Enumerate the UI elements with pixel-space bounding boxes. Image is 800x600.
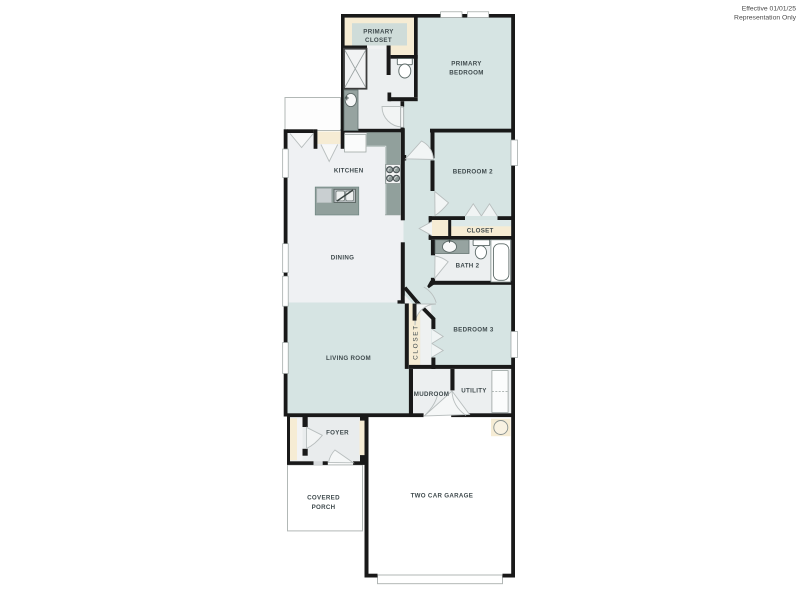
svg-text:Effective 01/01/25: Effective 01/01/25 <box>742 6 797 13</box>
svg-text:DINING: DINING <box>331 255 354 262</box>
svg-text:PORCH: PORCH <box>312 504 336 511</box>
svg-text:MUDROOM: MUDROOM <box>414 391 449 398</box>
svg-text:TWO CAR GARAGE: TWO CAR GARAGE <box>411 493 474 500</box>
svg-text:CLOSET: CLOSET <box>413 324 420 360</box>
svg-text:LIVING ROOM: LIVING ROOM <box>326 355 371 362</box>
svg-text:BEDROOM 2: BEDROOM 2 <box>453 169 493 176</box>
svg-text:BEDROOM: BEDROOM <box>449 70 483 77</box>
svg-text:BEDROOM 3: BEDROOM 3 <box>453 326 493 333</box>
svg-text:UTILITY: UTILITY <box>461 388 487 395</box>
svg-text:Representation Only: Representation Only <box>734 14 797 21</box>
svg-text:BATH 2: BATH 2 <box>456 262 480 269</box>
svg-text:KITCHEN: KITCHEN <box>334 167 364 174</box>
svg-text:COVERED: COVERED <box>307 495 340 502</box>
svg-text:PRIMARY: PRIMARY <box>451 61 482 68</box>
svg-text:CLOSET: CLOSET <box>467 228 494 235</box>
svg-text:PRIMARY: PRIMARY <box>363 28 394 35</box>
svg-text:CLOSET: CLOSET <box>365 37 392 44</box>
svg-text:FOYER: FOYER <box>326 430 349 437</box>
